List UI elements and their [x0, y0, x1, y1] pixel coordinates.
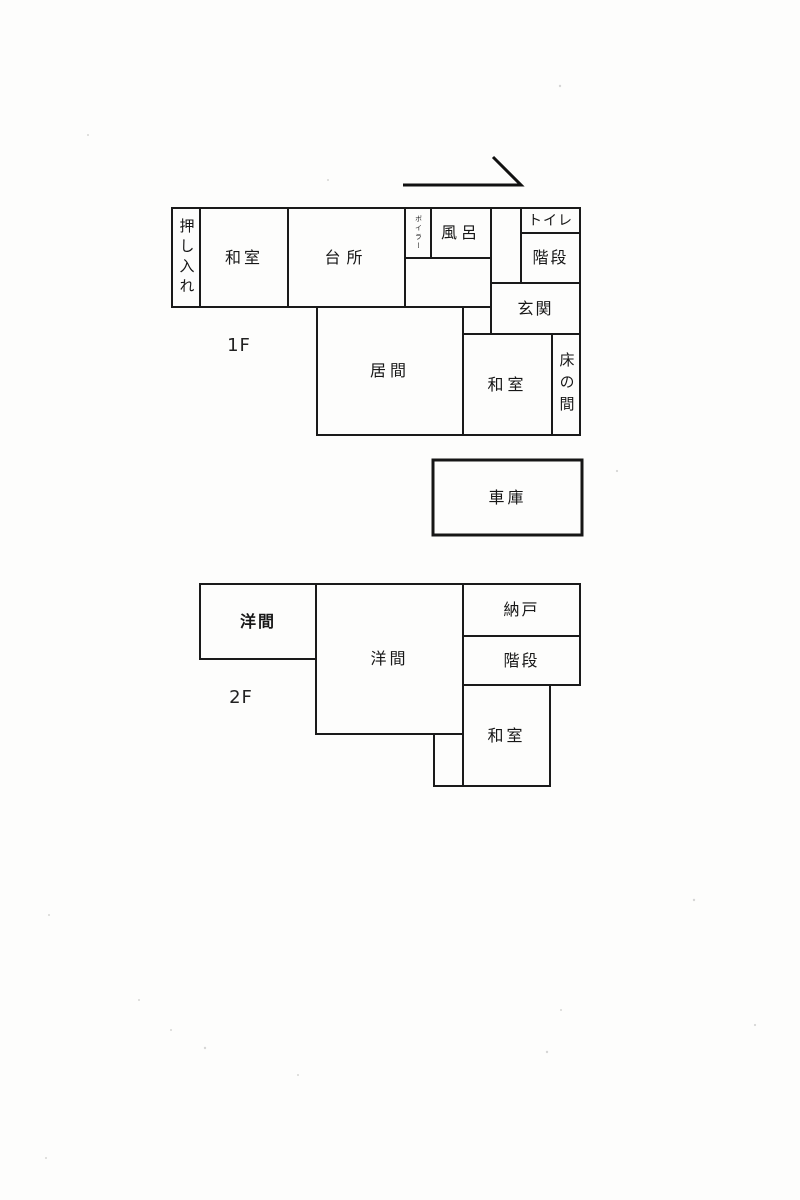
room-2f-kaidan: [463, 636, 580, 685]
room-1f-washitsu-left: [200, 208, 288, 307]
floor-plan-drawing: [0, 0, 800, 1200]
room-garage: [433, 460, 582, 535]
room-1f-boiler: [405, 208, 431, 258]
direction-arrow-icon: [403, 157, 521, 185]
room-2f-nando: [463, 584, 580, 636]
room-2f-youma-center: [316, 584, 463, 734]
room-2f-youma-left: [200, 584, 316, 659]
room-1f-furo: [431, 208, 491, 258]
room-1f-ima: [317, 307, 463, 435]
room-1f-hallway-unlabeled: [491, 208, 521, 283]
room-1f-washitsu-right: [463, 334, 552, 435]
room-1f-oshiire: [172, 208, 200, 307]
floor-plan-document: 押し入れ 和室 台所 ボイラー 風呂 トイレ 階段 玄関 居間 和室 床の間 1…: [0, 0, 800, 1200]
room-1f-tokonoma: [552, 334, 580, 435]
room-2f-washitsu: [463, 685, 550, 786]
room-1f-daidokoro: [288, 208, 405, 307]
floor-2f-outlines: [200, 584, 580, 786]
room-1f-genkan: [491, 283, 580, 334]
room-1f-toilet: [521, 208, 580, 233]
room-1f-utility-unlabeled: [405, 258, 491, 307]
room-1f-kaidan: [521, 233, 580, 283]
room-2f-small-unlabeled: [434, 734, 463, 786]
floor-1f-outlines: [172, 208, 580, 435]
room-1f-connector-unlabeled: [463, 307, 491, 334]
scan-specks: [45, 85, 756, 1159]
